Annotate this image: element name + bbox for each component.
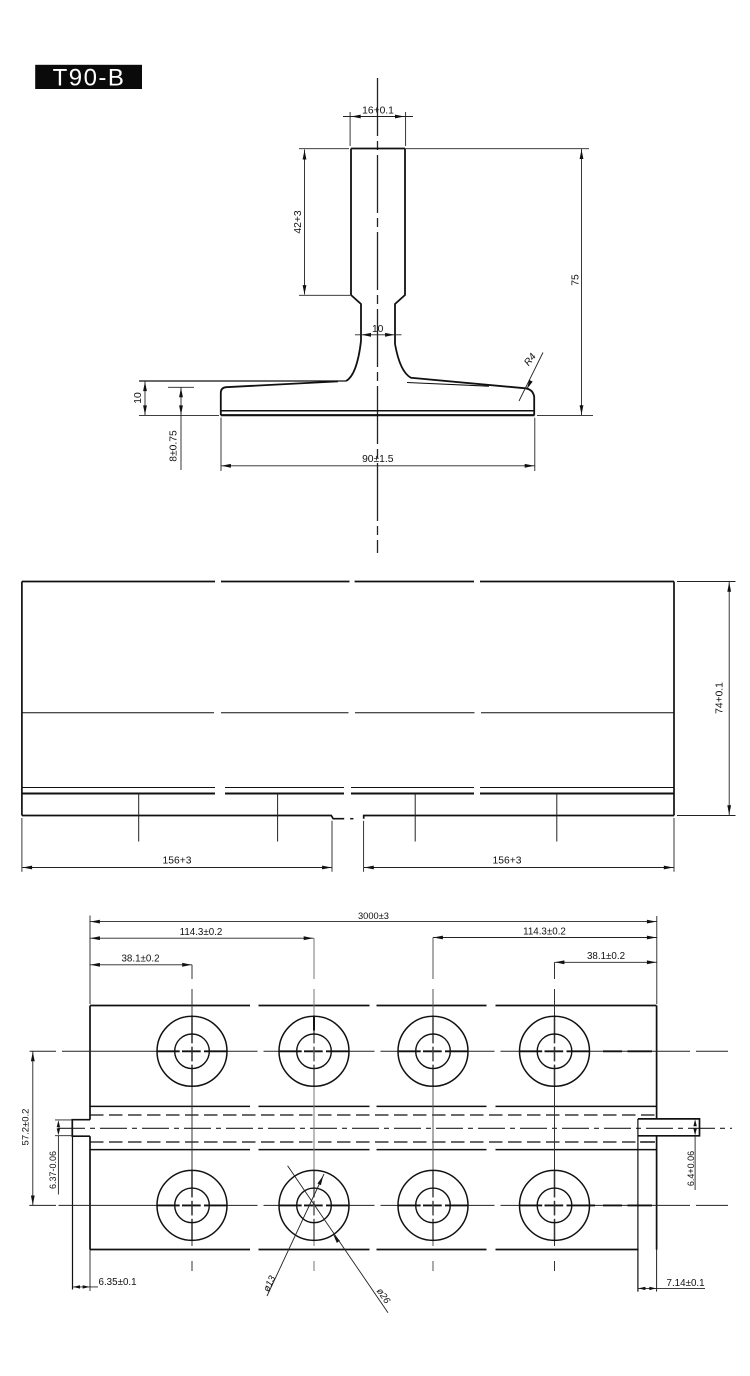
svg-text:10: 10 (372, 324, 384, 335)
svg-text:156+3: 156+3 (163, 856, 192, 867)
svg-text:7.14±0.1: 7.14±0.1 (667, 1278, 705, 1289)
svg-text:57.2±0.2: 57.2±0.2 (20, 1109, 31, 1146)
svg-text:10: 10 (133, 392, 144, 404)
svg-text:90±1.5: 90±1.5 (362, 454, 394, 465)
svg-text:75: 75 (570, 274, 581, 286)
svg-text:6.37-0.06: 6.37-0.06 (48, 1151, 58, 1189)
svg-text:8±0.75: 8±0.75 (169, 430, 180, 462)
svg-text:42+3: 42+3 (293, 210, 304, 233)
svg-text:6.4+0.06: 6.4+0.06 (686, 1151, 696, 1186)
svg-text:T90-B: T90-B (53, 65, 126, 92)
svg-text:38.1±0.2: 38.1±0.2 (121, 954, 159, 965)
svg-text:16+0.1: 16+0.1 (362, 105, 394, 116)
svg-text:74+0.1: 74+0.1 (715, 682, 726, 714)
svg-text:156+3: 156+3 (493, 856, 522, 867)
svg-text:3000±3: 3000±3 (358, 911, 389, 921)
svg-text:38.1±0.2: 38.1±0.2 (587, 951, 625, 962)
svg-text:6.35±0.1: 6.35±0.1 (99, 1277, 137, 1288)
svg-text:114.3±0.2: 114.3±0.2 (180, 927, 223, 938)
svg-text:114.3±0.2: 114.3±0.2 (523, 927, 566, 938)
